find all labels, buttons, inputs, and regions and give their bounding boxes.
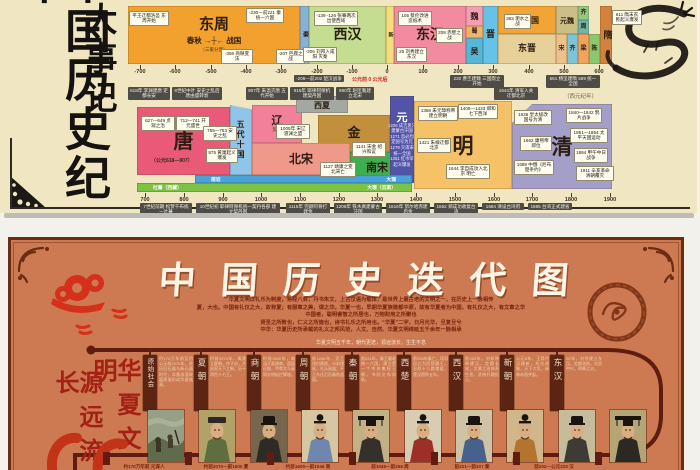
event-chip: （公元618—907） — [150, 158, 192, 165]
dynasty-label: 唐 — [174, 131, 194, 151]
emperor-portrait-qin-shihuang — [353, 410, 389, 462]
strip-label: 大理（云南） — [367, 184, 396, 191]
intro-line: 中国者，聪明睿智之所居也，万物财用之所聚也 — [116, 312, 606, 320]
event-chip-dark: 8世纪中叶 安史之乱后 唐由盛转衰 — [172, 87, 222, 100]
event-chip-dark: 10世纪初 耶律阿保机统一契丹各部 建立契丹国 — [196, 203, 280, 213]
dynasty-banner: 夏朝 — [194, 355, 208, 411]
event-chip-dark: 960年 赵匡胤建立北宋 — [336, 87, 374, 100]
event-chip: -207 巨鹿之战 — [276, 49, 305, 64]
event-chip-dark: 1206年 铁木真建蒙古汗国 — [334, 203, 382, 213]
corner-flourish-right-icon — [635, 245, 675, 285]
poster-photo-canvas: 中国历史纪年 大事记 东周春秋 →┼← 战国（三家分晋）秦西汉新东汉魏蜀吴晋十六… — [0, 0, 700, 470]
event-chip: 611 隋末农民起义爆发 — [612, 10, 642, 25]
title-character: 国 — [219, 250, 260, 304]
dynasty-banner-label: 西汉 — [450, 355, 462, 411]
timeline-note: 前221年，秦王嬴政统一六国，建立第一个中央集权王朝，书同文车同轨。 — [361, 356, 396, 410]
timeline-note: 约前1600年，商汤灭夏建商，盘庚迁殷，甲骨文与青铜文明灿烂辉煌。 — [263, 356, 295, 410]
dynasty-block-shu: 蜀 — [466, 26, 483, 38]
dynasty-block-yuanwei: 元魏 — [556, 6, 578, 34]
dynasty-banner: 西楚 — [397, 355, 411, 411]
period-label: 前221—前207 秦 — [455, 464, 490, 470]
event-chip: -139 -126 张骞两次出使西域 — [314, 11, 358, 26]
event-chip-dark: 220 曹丕建魏 三国鼎立开始 — [450, 75, 504, 88]
dynasty-banner-label: 秦朝 — [346, 355, 358, 411]
event-chip-dark: 1662 郑成功收复台湾 — [434, 203, 478, 213]
dynasty-banner: 原始社会 — [143, 355, 157, 411]
event-chip-dark: 618年 李渊建唐 定都长安 — [128, 87, 170, 100]
dynasty-banner-label: 夏朝 — [195, 355, 207, 411]
timeline-note: 公元8年，王莽代汉建新，托古改制，天下大乱，绿林赤眉并起。 — [516, 356, 549, 410]
timeline-node — [103, 452, 110, 465]
event-chip-dark: 1616年 努尔哈赤建后金 — [386, 203, 430, 213]
dynasty-label: 南宋 — [366, 162, 388, 173]
dynasty-banner-label: 西楚 — [398, 355, 410, 411]
timeline-node — [349, 452, 356, 465]
dynasty-block-dongjin: 东晋 — [498, 34, 556, 64]
event-chip: 105 蔡伦改进造纸术 — [398, 11, 432, 26]
dynasty-label: 新 — [388, 32, 393, 39]
event-chip: 208 赤壁之战 — [436, 28, 463, 43]
event-chip: -206 刘邦入咸阳 灭秦 — [303, 47, 337, 62]
dynasty-block-qi-south: 齐 — [567, 34, 578, 64]
dynasty-block-wei: 魏 — [466, 6, 483, 26]
axis-tick-label: 100 — [418, 69, 427, 75]
dynasty-banner-label: 周朝 — [297, 355, 309, 411]
strip-label: 南诏 — [211, 176, 221, 183]
title-character: 史 — [344, 250, 385, 304]
title-character: 中 — [157, 250, 198, 304]
event-chip-dark: 1644年 清军入关 迁都北京 — [494, 87, 538, 100]
axis-tick-label: 1900 — [604, 197, 616, 203]
intro-line: 贤圣之所教也，仁义之所施也，诗书礼乐之所用也。“华夏”二字，日月光华，旦复旦兮 — [116, 320, 606, 328]
event-chip: 875 黄巢起义爆发 — [206, 148, 238, 163]
title-character: 迭 — [406, 250, 447, 304]
event-chip: 755—763 安史之乱 — [203, 126, 237, 141]
strip-label: 大理 — [386, 176, 396, 183]
event-chip: -230—前221 秦统一六国 — [246, 8, 284, 23]
event-chip: 1127 靖康之变 北宋亡 — [320, 162, 356, 177]
dynasty-banner: 秦朝 — [345, 355, 359, 411]
dynasty-block-wu: 吴 — [466, 38, 483, 64]
timeline-node — [513, 452, 520, 465]
event-chip: 1662 康熙帝即位 — [520, 136, 552, 151]
top-poster-chronology-chart: 中国历史纪年 大事记 东周春秋 →┼← 战国（三家分晋）秦西汉新东汉魏蜀吴晋十六… — [0, 0, 697, 213]
axis-tick-label: -100 — [346, 69, 357, 75]
period-label: 约前1600—前1046 商 — [286, 464, 331, 470]
era-divider-note: 公元前 0 公元后 — [352, 76, 388, 83]
dynasty-label: 北宋 — [289, 153, 313, 165]
timeline-note: 前1046年，武王伐纣建周，分封诸侯，礼乐昌盛；平王东迁后历春秋战国。 — [312, 356, 344, 410]
axis-tick-label: -300 — [275, 69, 286, 75]
emperor-portrait-han-gaozu-liubang — [456, 410, 492, 462]
emperor-portrait-primitive-society — [148, 410, 184, 462]
poster-drop-shadow — [4, 213, 694, 218]
event-chip-dark: 1684 清设台湾府 — [482, 203, 524, 210]
dynasty-block-jin: 晋 — [483, 6, 498, 64]
event-chip-dark: 916年 耶律阿保机建契丹国 — [290, 87, 334, 100]
dynasty-label: 魏 — [471, 12, 479, 20]
timeline-node — [267, 452, 274, 465]
period-label: 前1046—前256 周 — [371, 464, 409, 470]
dynasty-block-xin: 新 — [386, 6, 394, 64]
event-chip: 627—649 贞观之治 — [141, 116, 175, 131]
dynasty-label: 西汉 — [334, 28, 362, 42]
ink-dragon-illustration — [588, 0, 697, 96]
bottom-poster-succession-chart: 中国历史迭代图 华夏文明以礼乐为制度，易经八卦，丹书朱文，上古汉语为载体，是世界… — [8, 237, 684, 470]
axis-tick-label: -400 — [240, 69, 251, 75]
strip-label: 吐蕃（西藏） — [153, 184, 182, 191]
emperor-portrait-xin-dynasty-wangmang — [559, 410, 595, 462]
timeline-node — [185, 452, 192, 465]
timeline-note: 25年，刘秀建立东汉，定都洛阳，光武中兴，明章之治。 — [566, 356, 602, 410]
axis-tick-label: -500 — [205, 69, 216, 75]
dynasty-label: 齐 — [569, 46, 575, 52]
tubo-strip: 吐蕃（西藏）大理（云南） — [137, 183, 412, 192]
emperor-portrait-donghan-guangwudi — [610, 410, 646, 462]
axis-tick-label: 0 — [385, 69, 388, 75]
dynasty-event-line: 起义爆发 — [393, 162, 410, 168]
period-label: 约170万年前 元谋人 — [123, 464, 164, 470]
dynasty-banner-label: 新朝 — [501, 355, 513, 411]
period-label: 前202—公元220 汉 — [534, 464, 574, 470]
event-chip: 25 刘秀建立东汉 — [396, 47, 427, 62]
event-chip-dark: 1885 台湾正式建省 — [528, 203, 572, 210]
dynasty-label: 东周 — [199, 17, 229, 32]
dynasty-label: 吴 — [471, 47, 479, 55]
event-chip: 1840—1842 鸦片战争 — [566, 108, 602, 123]
poster-frame-left — [10, 138, 12, 208]
dynasty-label: 东晋 — [518, 45, 536, 54]
event-chip: 383 淝水之战 — [504, 14, 531, 29]
emperor-portrait-zhou-king-wen — [302, 410, 338, 462]
event-chip: 1421 朱棣迁都北京 — [417, 138, 451, 153]
timeline-note: 前202年，刘邦称帝建汉，定都长安，文景之治休养生息，武帝开疆拓土。 — [465, 356, 499, 410]
event-chip: 1005年 宋辽 澶渊之盟 — [276, 124, 310, 139]
event-chip-dark: 1115年 完颜阿骨打建金 — [286, 203, 330, 213]
axis-tick-label: -600 — [169, 69, 180, 75]
timeline-node — [595, 452, 602, 465]
dynasty-banner: 商朝 — [247, 355, 261, 411]
dynasty-banner-label: 东汉 — [551, 355, 563, 411]
nanzhao-dali-strip: 南诏大理 — [195, 175, 412, 183]
intro-line: 中华：华夏历史所承载的礼义之邦风范，人文、自然、华夏文明绵延五千余年一脉相承 — [116, 327, 606, 335]
dynasty-sublabel: 春秋 →┼← 战国 — [187, 35, 241, 46]
dynasty-label: 明 — [453, 135, 474, 156]
dynasty-label: 晋 — [486, 31, 495, 40]
timeline-note: 约170万年前至约公元前2070年，经历旧石器与新石器时代，炎黄部落联盟逐渐形成… — [159, 356, 193, 410]
dynasty-block-yuan: 元1206 成吉思汗建蒙古汗国1271 忽必烈定国号为元1279 灭南宋统一全国… — [390, 96, 414, 183]
timeline-caption: 华夏文明五千年，朝代更迭，源远流长，生生不息 — [161, 339, 581, 346]
dynasty-label: 秦 — [302, 31, 308, 39]
dynasty-label: 蜀 — [471, 29, 477, 35]
dynasty-block-song-south: 宋 — [556, 34, 567, 64]
dynasty-label: 元魏 — [560, 17, 574, 24]
axis-tick-label: 400 — [524, 69, 533, 75]
event-chip-dark: -206—前202 楚汉战争 — [294, 75, 344, 82]
dynasty-banner: 东汉 — [550, 355, 564, 411]
poster-subtitle-vertical: 大事记 — [82, 2, 115, 119]
event-chip: -356 商鞅变法 — [221, 49, 253, 64]
event-chip: 1141 宋金 绍兴和议 — [352, 142, 386, 157]
event-chip: 1894 甲午中日战争 — [574, 148, 608, 163]
dynasty-label: 齐 — [580, 10, 586, 16]
corner-lace-decoration — [10, 176, 46, 208]
dynasty-label: 宋 — [558, 46, 564, 52]
event-chip: 1911 辛亥革命 清朝覆灭 — [576, 166, 614, 181]
dynasty-label: 西夏 — [314, 101, 330, 109]
dynasty-banner: 周朝 — [296, 355, 310, 411]
bottom-poster-title: 中国历史迭代图 — [157, 250, 571, 304]
timeline-note: 前206年秦亡，项羽自立为西楚霸王，分封十八路诸侯，楚汉相争五年。 — [413, 356, 448, 410]
title-character: 代 — [468, 250, 509, 304]
dynasty-banner-label: 原始社会 — [145, 355, 155, 411]
axis-tick-label: -700 — [134, 69, 145, 75]
event-chip: 1689 中俄《尼布楚条约》 — [514, 160, 554, 175]
period-label: 约前2070—前1600 夏 — [204, 464, 249, 470]
event-chip: 1644 李自成攻入北京 明亡 — [446, 164, 490, 179]
event-chip: 平王迁都洛邑 东周开始 — [129, 11, 169, 26]
dynasty-label: 五代十国 — [237, 120, 245, 160]
emperor-portrait-xia-dynasty-yu — [199, 410, 235, 462]
dynasty-label: 元 — [397, 112, 408, 123]
dynasty-label: 金 — [347, 127, 360, 140]
event-chip-dark: 7世纪前期 松赞干布统一吐蕃 — [140, 203, 192, 213]
timeline-note: 约前2070年，禹建立夏朝，传子启，开启家天下之制，历十四世十七王。 — [210, 356, 246, 410]
intro-line: 夏，大也。中国有礼仪之大，故称夏；有服章之美，谓之华。华夏一也，早期华夏族建都中… — [116, 305, 606, 313]
dynasty-label: 梁 — [580, 46, 586, 52]
title-character: 历 — [281, 250, 322, 304]
dynasty-banner: 西汉 — [449, 355, 463, 411]
timeline-node — [431, 452, 438, 465]
event-chip: 1405—1433 郑和七下西洋 — [458, 104, 498, 119]
event-chip-dark: 581 杨坚建隋 589 统一全国 — [546, 75, 600, 88]
event-chip: 1368 朱元璋称帝 建立明朝 — [418, 106, 458, 121]
dynasty-banner: 新朝 — [500, 355, 514, 411]
event-chip-dark: 907年 朱温灭唐 五代开始 — [246, 87, 288, 100]
dynasty-label: 周 — [580, 24, 586, 30]
event-chip: 1851—1864 太平天国运动 — [570, 128, 608, 143]
dynasty-banner-label: 商朝 — [248, 355, 260, 411]
title-character: 图 — [530, 250, 571, 304]
event-chip: 1636 皇太极改国号为清 — [514, 110, 552, 125]
